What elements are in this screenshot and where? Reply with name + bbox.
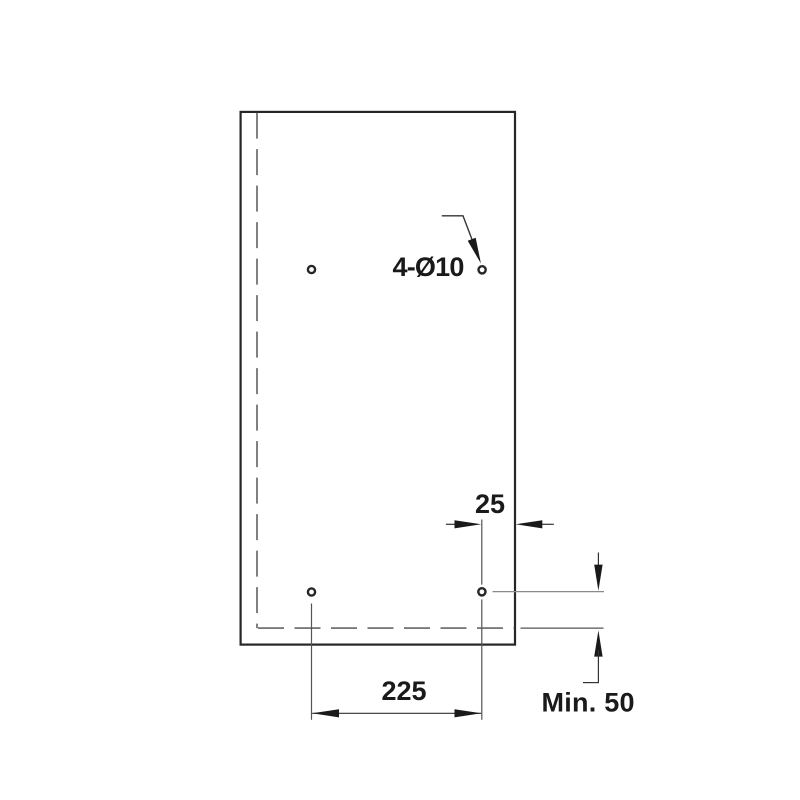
svg-text:225: 225 [382,676,427,706]
svg-text:Min. 50: Min. 50 [542,688,635,718]
svg-text:4-Ø10: 4-Ø10 [393,252,464,282]
svg-text:25: 25 [475,489,505,519]
